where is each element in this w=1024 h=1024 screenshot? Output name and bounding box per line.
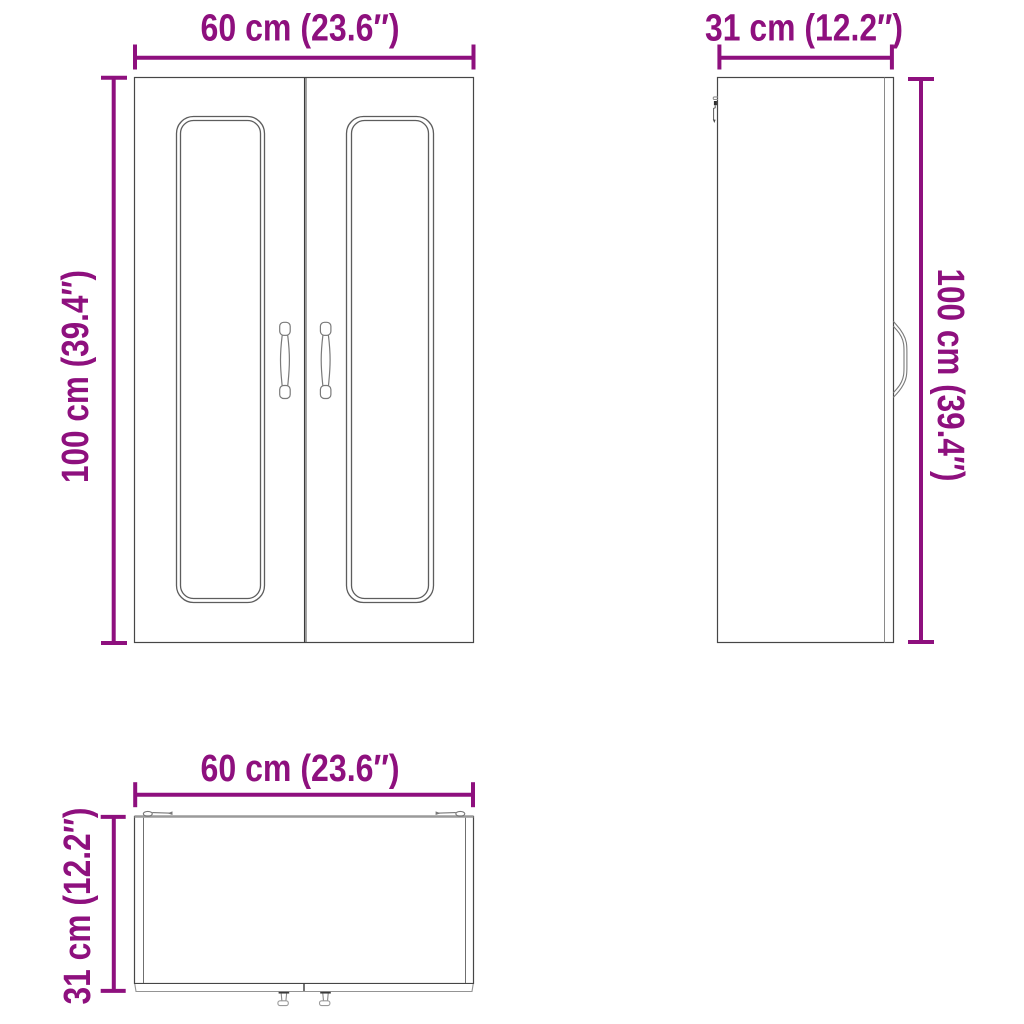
svg-text:100 cm (39.4″): 100 cm (39.4″) bbox=[55, 270, 97, 483]
svg-text:100 cm (39.4″): 100 cm (39.4″) bbox=[929, 269, 971, 482]
svg-text:31 cm (12.2″): 31 cm (12.2″) bbox=[705, 8, 903, 50]
svg-text:31 cm (12.2″): 31 cm (12.2″) bbox=[57, 808, 99, 1005]
svg-text:60 cm (23.6″): 60 cm (23.6″) bbox=[201, 8, 400, 50]
svg-text:60 cm (23.6″): 60 cm (23.6″) bbox=[201, 748, 400, 790]
